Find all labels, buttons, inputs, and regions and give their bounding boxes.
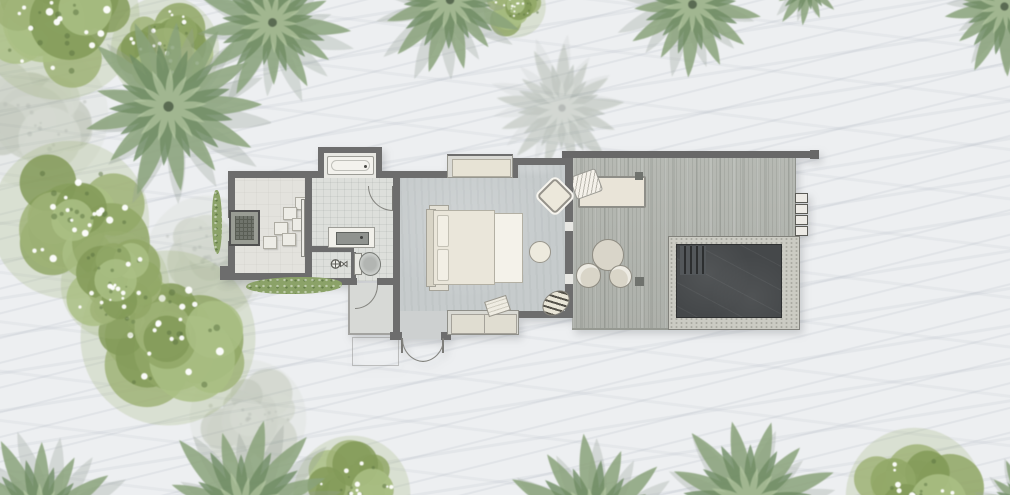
wall [228,171,312,178]
wall [393,171,400,285]
round-pouf [529,241,551,263]
deck-chair [609,265,632,288]
pillow [437,249,449,281]
deck-marker [635,277,644,286]
beach-step [795,193,808,203]
wall [393,283,400,335]
villa-building [0,0,1010,495]
floor-plan-canvas [0,0,1010,495]
entry-porch-outline [352,337,399,366]
vanity-counter [328,227,375,248]
roof-edge-line [562,151,818,158]
deck-marker [635,172,643,180]
bench-cushion [451,314,485,334]
outdoor-bench [447,310,519,335]
pool-step-line [690,246,692,274]
sliding-door-break [565,274,573,284]
window-seat [447,154,513,178]
entry-door-swing [402,339,424,362]
garden-hedge [212,190,222,254]
roof-edge-endcap [810,150,819,159]
stepping-stone [263,236,277,249]
wall [318,147,324,178]
bed-foot-bench [494,213,523,283]
deck-chair [576,263,601,288]
pillow [437,215,449,247]
bed-mattress [433,210,495,285]
stepping-stone [282,233,296,246]
entry-door-swing [422,339,444,362]
wall [376,147,382,178]
vanity-basin [336,232,369,245]
bathtub [327,156,374,175]
wall-pier [220,266,229,280]
beach-step [795,215,808,225]
beach-step [795,226,808,236]
bathtub-drain [364,165,367,168]
pool-step-line [696,246,698,274]
pool-step-line [702,246,704,274]
tap-valve-icon [330,256,348,272]
wall [511,158,573,165]
entry-nook-floor [397,311,447,339]
shower-drain-grate [235,216,254,240]
bedroom-alcove-floor [511,163,567,178]
pool-step-line [684,246,686,274]
vanity-tap-dot [360,236,363,239]
window-seat-cushion [452,159,511,177]
sliding-door-break [565,222,573,231]
wall [318,147,382,153]
beach-step [795,204,808,214]
wall [305,171,312,285]
